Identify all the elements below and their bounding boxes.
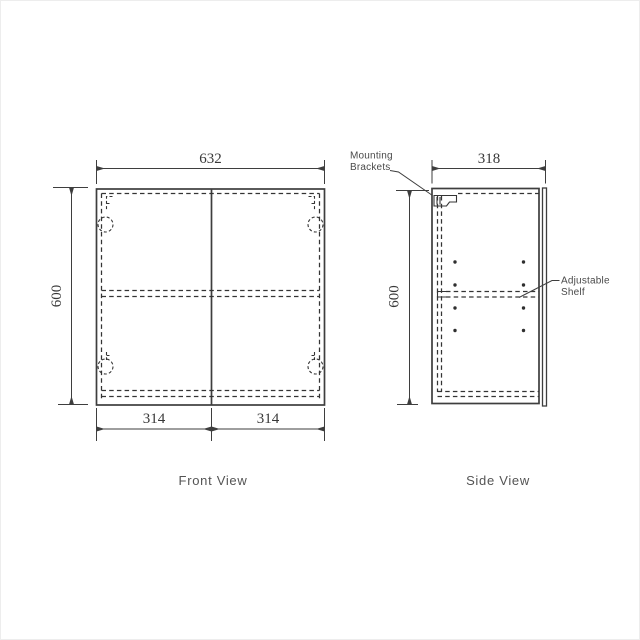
shelf-pin-hole [453, 329, 456, 332]
front-height-dimension-label: 600 [49, 285, 65, 308]
shelf-pin-hole [522, 260, 525, 263]
hinge-icon [308, 217, 323, 232]
shelf-pin-hole [522, 283, 525, 286]
right-door-dimension-label: 314 [257, 411, 280, 427]
adjustable-shelf-label-line2: Shelf [561, 287, 585, 298]
hinge-icon [308, 359, 323, 374]
side-height-dimension-label: 600 [387, 285, 403, 308]
side-view-title: Side View [466, 473, 530, 488]
shelf-pin-hole [453, 283, 456, 286]
hinge-icon [98, 359, 113, 374]
front-view-title: Front View [179, 473, 248, 488]
side-view-drawing: 318 600 Mounting Brackets Adjustable She… [350, 151, 610, 489]
cabinet-drawing-canvas: 632 600 314 314 Front View [0, 0, 640, 640]
front-width-dimension-label: 632 [199, 151, 222, 167]
mounting-brackets-label-line2: Brackets [350, 162, 391, 173]
shelf-pin-hole [522, 306, 525, 309]
hinge-plate-icon [107, 197, 113, 211]
front-view-drawing: 632 600 314 314 Front View [49, 151, 325, 488]
side-depth-dimension-label: 318 [478, 151, 501, 167]
hinge-icon [98, 217, 113, 232]
side-door-panel [543, 188, 547, 406]
adjustable-shelf-label-line1: Adjustable [561, 276, 610, 287]
mounting-bracket-icon [434, 196, 457, 207]
mounting-brackets-label-line1: Mounting [350, 151, 393, 162]
shelf-pin-hole [453, 306, 456, 309]
hinge-plate-icon [309, 197, 315, 211]
shelf-pin-hole [522, 329, 525, 332]
technical-drawing-page: 632 600 314 314 Front View [0, 0, 640, 640]
left-door-dimension-label: 314 [143, 411, 166, 427]
shelf-pin-hole [453, 260, 456, 263]
mounting-brackets-leader-line [390, 171, 433, 196]
